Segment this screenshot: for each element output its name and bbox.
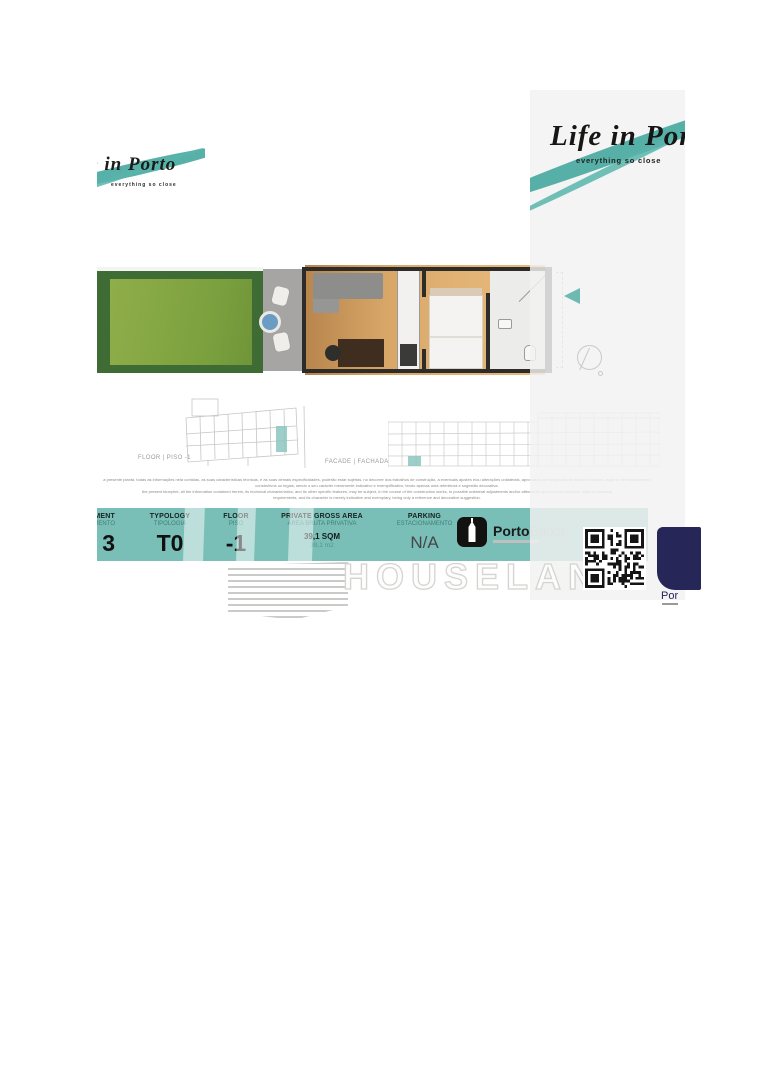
qr-code: [583, 527, 646, 590]
overlay-panel: [530, 90, 685, 600]
patio-chair: [272, 332, 290, 353]
portobaixa-tower-icon: [457, 517, 487, 547]
corner-brand-text: Por: [661, 590, 678, 602]
compass-dot-icon: [598, 371, 603, 376]
watermark-bar: [236, 505, 256, 562]
compass-icon: [577, 345, 602, 370]
plan-desk-chair: [325, 345, 341, 361]
watermark-hatch-icon: [228, 562, 348, 620]
spec-col-area: PRIVATE GROSS AREA ÁREA BRUTA PRIVATIVA …: [267, 508, 377, 561]
patio-chair: [271, 285, 290, 306]
plan-wardrobe: [397, 271, 420, 369]
spec-col-apartment: APARTMENT APARTAMENTO 3: [97, 508, 135, 561]
portobaixa-name-bold: Porto: [493, 523, 530, 539]
brand-logo-small: Life in Porto everything so close: [97, 148, 205, 200]
previous-arrow-icon[interactable]: [564, 288, 580, 304]
corner-brand-tagline-bar: [662, 603, 678, 605]
property-listing-page: Life in Porto everything so close: [0, 0, 763, 1080]
watermark-bar: [181, 505, 205, 618]
plan-bed: [429, 295, 483, 369]
section-drawing: [178, 398, 318, 468]
facade-drawing-label: FACADE | FACHADA: [325, 459, 389, 465]
patio-table: [259, 311, 281, 333]
plan-patio: [263, 269, 305, 371]
floor-drawing-label: FLOOR | PISO -1: [138, 455, 191, 461]
corner-brand-logo: [657, 527, 701, 590]
brand-tagline: everything so close: [111, 182, 177, 188]
plan-garden: [97, 267, 263, 373]
plan-desk: [338, 339, 384, 367]
plan-sink: [498, 319, 512, 329]
floor-plan-image: [97, 265, 555, 375]
brand-logo-text: Life in Porto: [97, 154, 176, 176]
plan-sofa: [313, 273, 383, 299]
